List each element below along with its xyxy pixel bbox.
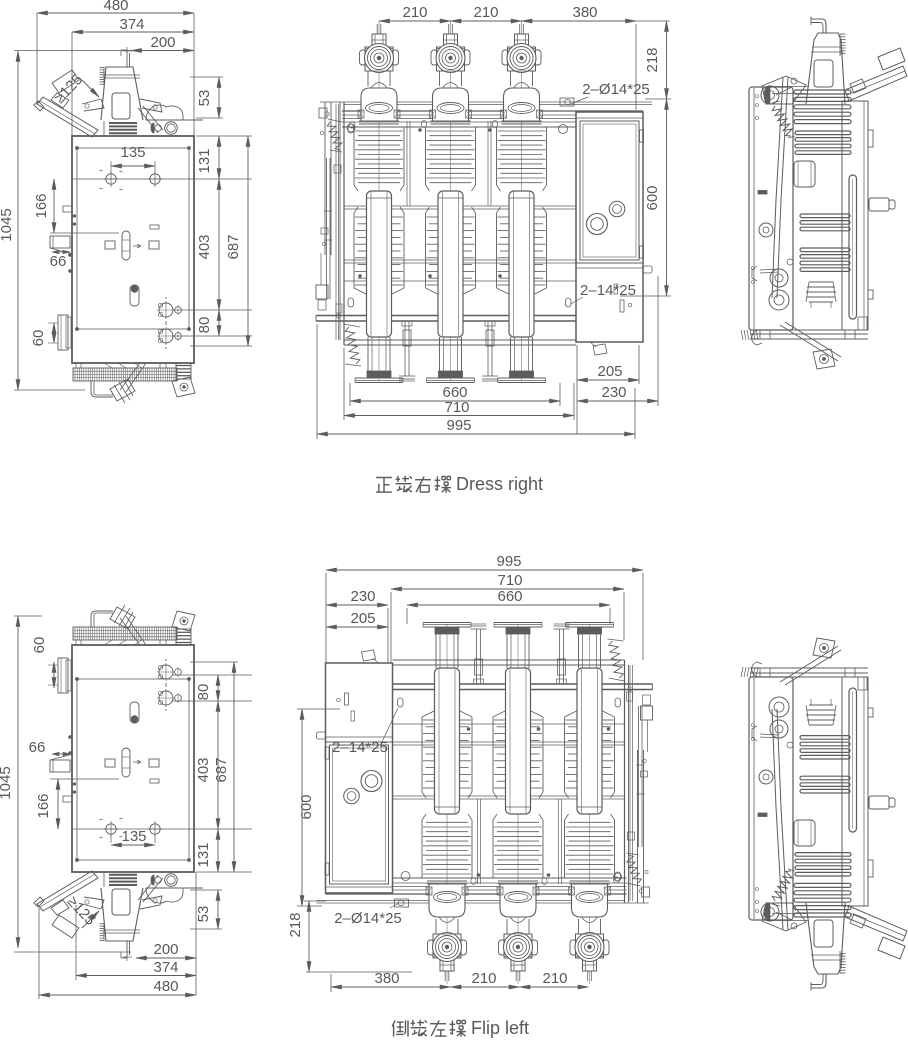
svg-text:995: 995 — [446, 417, 471, 434]
svg-text:135: 135 — [121, 828, 146, 845]
svg-text:2–Ø14*25: 2–Ø14*25 — [582, 81, 650, 98]
svg-text:210: 210 — [473, 4, 498, 21]
svg-text:131: 131 — [195, 842, 212, 867]
svg-text:80: 80 — [196, 317, 213, 334]
svg-text:230: 230 — [601, 384, 626, 401]
svg-text:374: 374 — [153, 959, 178, 976]
svg-text:205: 205 — [597, 363, 622, 380]
svg-text:230: 230 — [350, 588, 375, 605]
svg-text:1045: 1045 — [0, 208, 15, 241]
svg-text:710: 710 — [497, 572, 522, 589]
svg-text:80: 80 — [195, 684, 212, 701]
svg-text:1045: 1045 — [0, 766, 14, 799]
svg-text:2–14*25: 2–14*25 — [580, 282, 636, 299]
svg-text:710: 710 — [444, 399, 469, 416]
svg-text:166: 166 — [35, 793, 52, 818]
svg-text:660: 660 — [497, 588, 522, 605]
svg-text:480: 480 — [153, 978, 178, 995]
svg-text:60: 60 — [31, 637, 48, 654]
svg-text:Flip left: Flip left — [471, 1018, 529, 1038]
svg-text:53: 53 — [196, 90, 213, 107]
svg-text:66: 66 — [50, 253, 67, 270]
svg-text:218: 218 — [644, 47, 661, 72]
svg-text:135: 135 — [120, 144, 145, 161]
svg-text:600: 600 — [644, 185, 661, 210]
svg-text:380: 380 — [374, 970, 399, 987]
svg-text:66: 66 — [29, 739, 46, 756]
svg-text:131: 131 — [196, 148, 213, 173]
svg-text:687: 687 — [225, 234, 242, 259]
svg-text:53: 53 — [195, 906, 212, 923]
svg-text:380: 380 — [572, 4, 597, 21]
svg-text:995: 995 — [496, 553, 521, 570]
svg-text:166: 166 — [33, 193, 50, 218]
svg-text:687: 687 — [213, 757, 230, 782]
svg-text:210: 210 — [542, 970, 567, 987]
svg-text:374: 374 — [119, 16, 144, 33]
svg-text:2–Ø14*25: 2–Ø14*25 — [334, 910, 402, 927]
svg-text:205: 205 — [350, 610, 375, 627]
svg-text:200: 200 — [153, 941, 178, 958]
svg-text:60: 60 — [30, 330, 47, 347]
svg-text:403: 403 — [196, 234, 213, 259]
svg-text:210: 210 — [402, 4, 427, 21]
svg-text:218: 218 — [287, 912, 304, 937]
svg-text:200: 200 — [150, 34, 175, 51]
svg-text:600: 600 — [298, 794, 315, 819]
svg-text:403: 403 — [195, 757, 212, 782]
svg-text:480: 480 — [103, 0, 128, 14]
svg-text:210: 210 — [471, 970, 496, 987]
svg-text:2–14*25: 2–14*25 — [332, 739, 388, 756]
svg-text:Dress right: Dress right — [456, 474, 543, 494]
